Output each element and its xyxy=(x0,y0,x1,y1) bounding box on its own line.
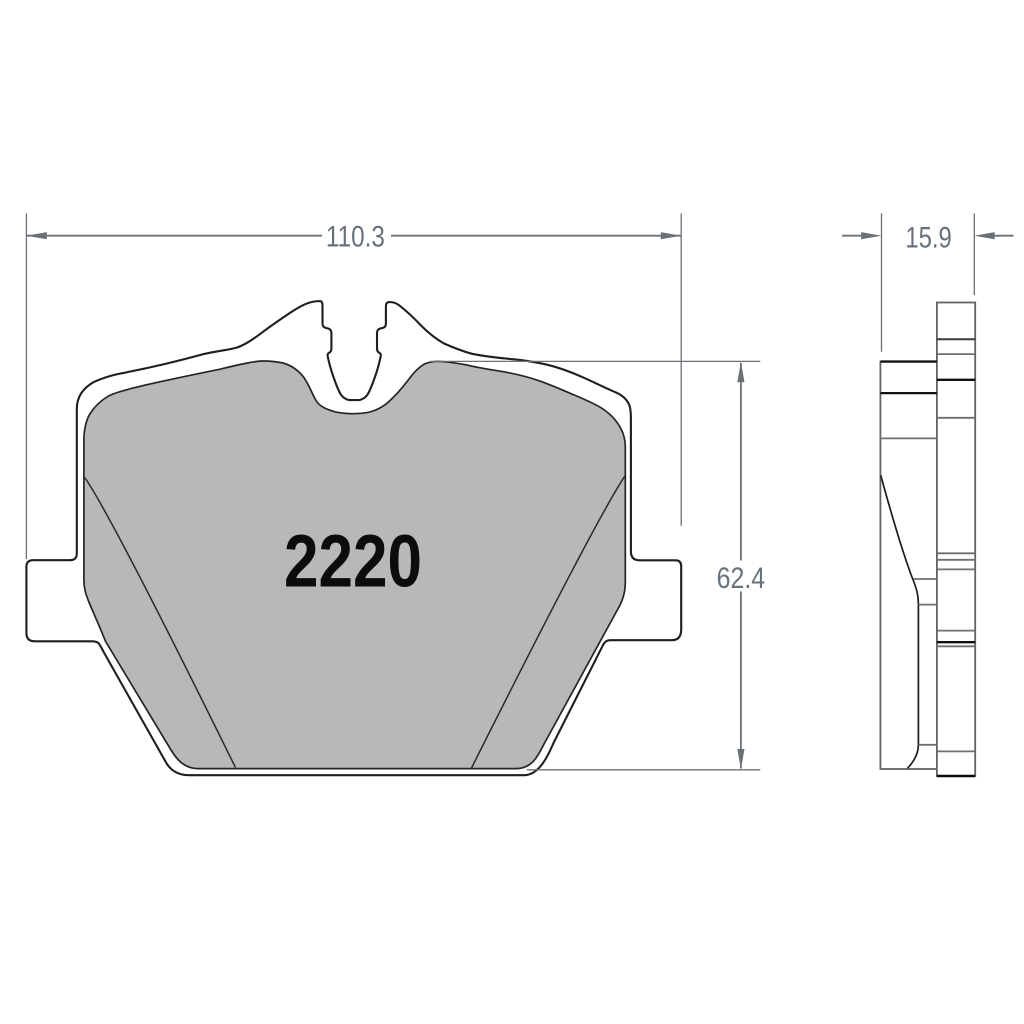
svg-text:62.4: 62.4 xyxy=(717,562,766,595)
svg-text:110.3: 110.3 xyxy=(326,220,385,253)
svg-text:2220: 2220 xyxy=(284,520,422,603)
svg-text:15.9: 15.9 xyxy=(905,222,952,255)
